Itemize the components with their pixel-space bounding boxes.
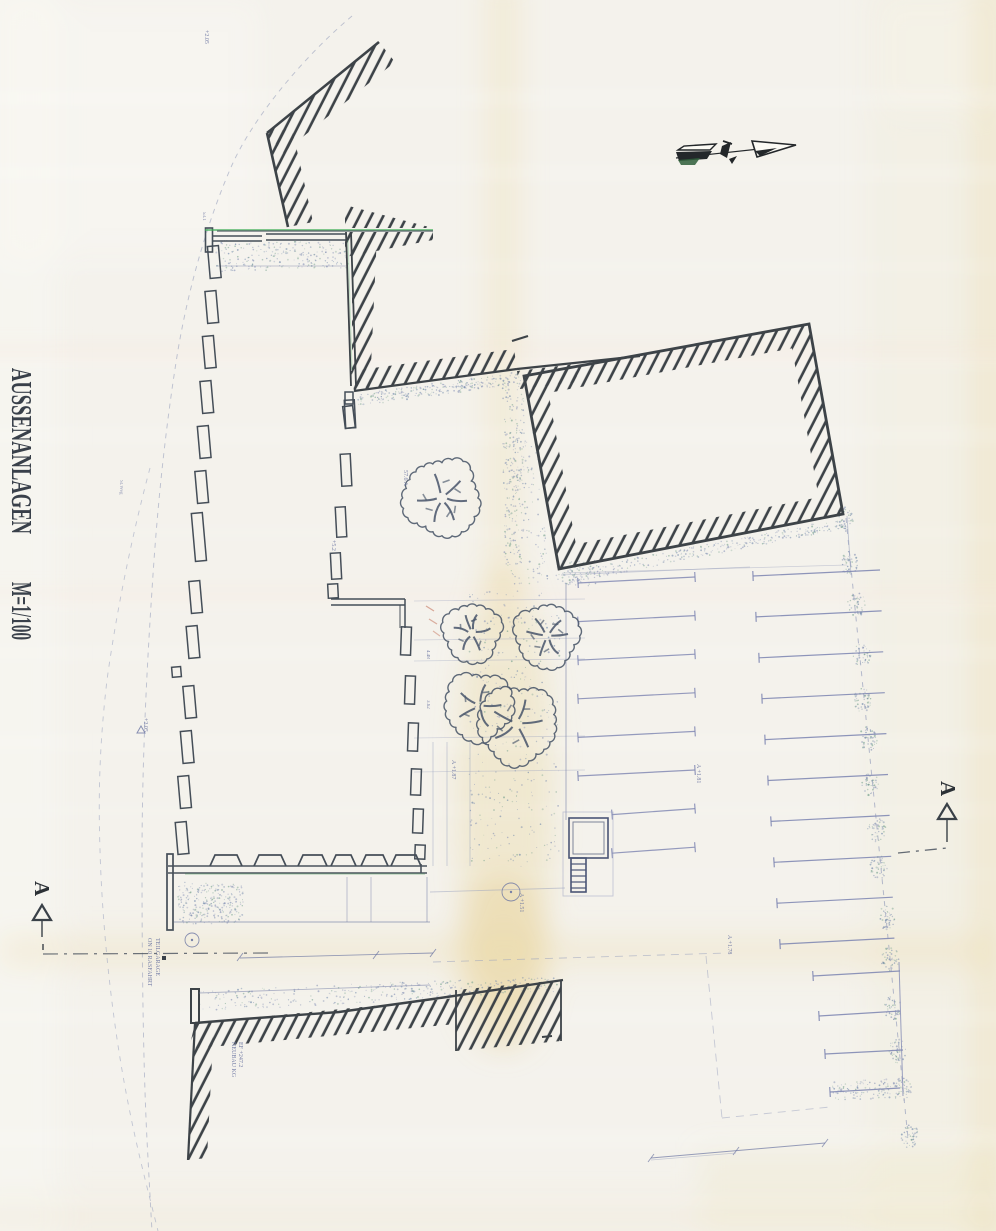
svg-text:57.6 A: 57.6 A bbox=[402, 470, 408, 487]
svg-text:+2.05: +2.05 bbox=[203, 30, 209, 44]
svg-text:A +1.87: A +1.87 bbox=[450, 760, 456, 779]
svg-text:AUSSENANLAGEN: AUSSENANLAGEN bbox=[5, 368, 36, 534]
svg-text:4.48: 4.48 bbox=[425, 650, 430, 659]
svg-text:St.Weg: St.Weg bbox=[118, 480, 123, 495]
svg-text:ON 10 RASFAHRT: ON 10 RASFAHRT bbox=[146, 938, 152, 987]
svg-text:A: A bbox=[30, 881, 54, 897]
svg-text:M=1/100: M=1/100 bbox=[5, 582, 36, 640]
svg-text:A +1.78: A +1.78 bbox=[726, 935, 732, 954]
svg-text:NEUBAU KG: NEUBAU KG bbox=[230, 1042, 236, 1078]
svg-text:A: A bbox=[936, 781, 960, 797]
svg-text:EF +247.2: EF +247.2 bbox=[237, 1042, 243, 1067]
svg-text:+5.2: +5.2 bbox=[330, 540, 336, 551]
svg-text:A +1.81: A +1.81 bbox=[695, 764, 701, 783]
svg-text:3.62: 3.62 bbox=[425, 700, 430, 709]
svg-text:TEILGARAGE: TEILGARAGE bbox=[154, 938, 160, 976]
svg-text:53.1: 53.1 bbox=[201, 212, 206, 221]
